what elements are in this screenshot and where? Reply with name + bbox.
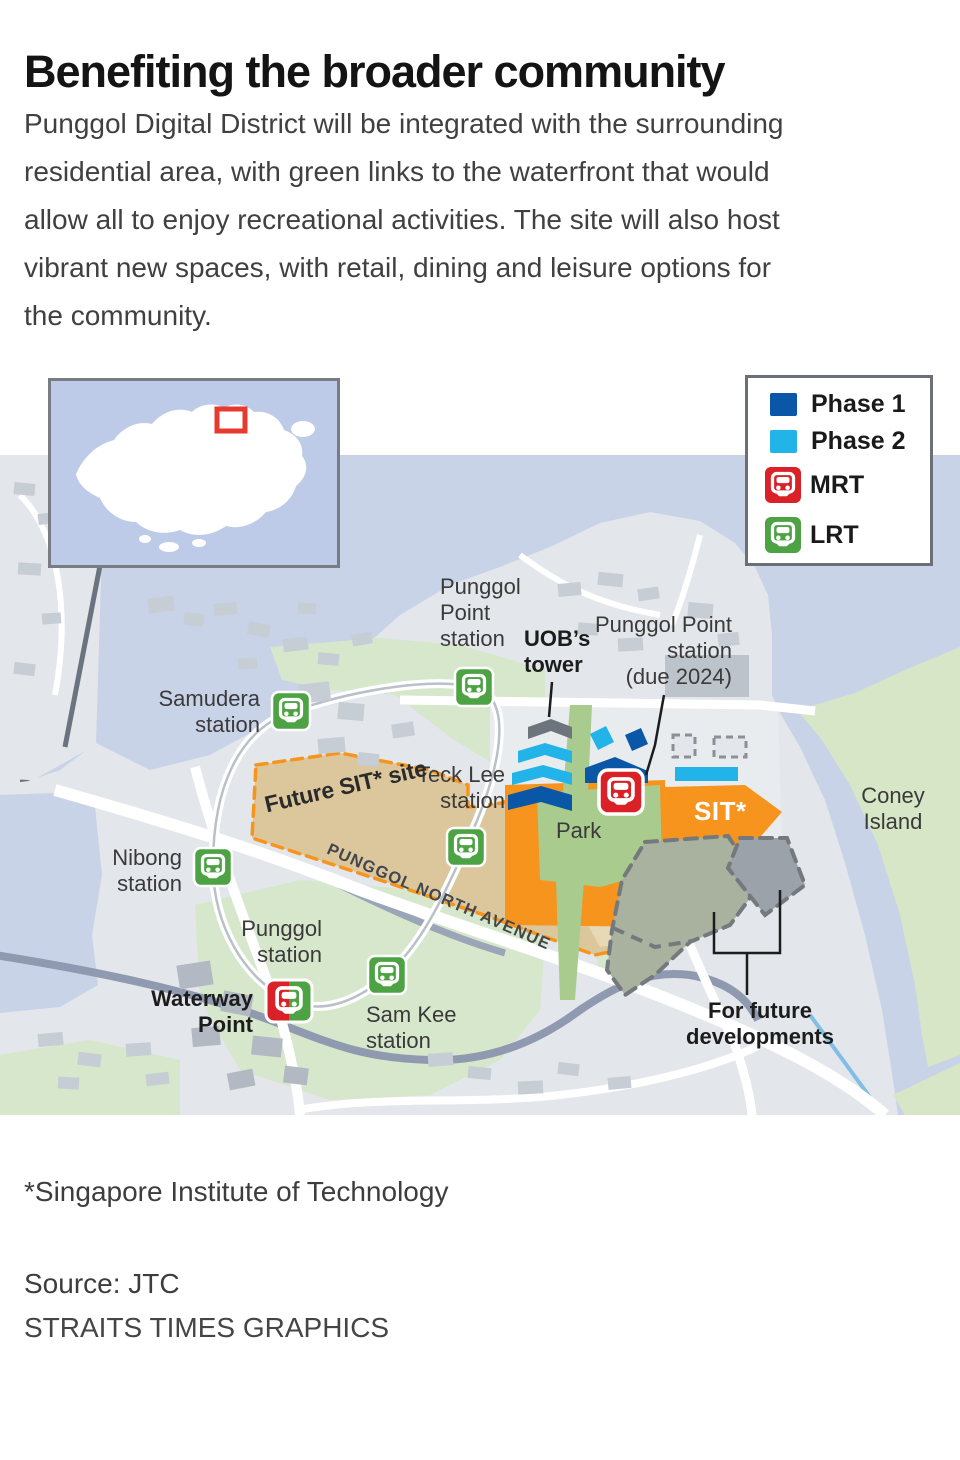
intro-line: vibrant new spaces, with retail, dining … (24, 244, 784, 292)
map-legend: Phase 1 Phase 2 MRT LRT (745, 375, 933, 566)
lrt-icon (764, 516, 802, 554)
teck-lee-station-label: Teck Lee station (417, 762, 505, 814)
samudera-lrt-icon (272, 692, 310, 730)
phase2-label: Phase 2 (811, 427, 906, 456)
intro-line: residential area, with green links to th… (24, 148, 784, 196)
mrt-icon (764, 466, 802, 504)
future-developments-label: For future developments (660, 998, 860, 1050)
punggol-point-mrt-icon (599, 770, 643, 814)
islet (291, 421, 315, 437)
infographic-page: Benefiting the broader community Punggol… (0, 0, 960, 1460)
water-inlet (0, 793, 102, 1013)
credit-line: STRAITS TIMES GRAPHICS (24, 1312, 389, 1344)
punggol-point-station-label: Punggol Point station (440, 574, 521, 652)
intro-line: allow all to enjoy recreational activiti… (24, 196, 784, 244)
sit-label: SIT* (694, 796, 747, 827)
future-building-outline (673, 735, 695, 757)
legend-row-lrt: LRT (764, 514, 930, 556)
punggol-mrt-lrt-interchange-icon (266, 980, 312, 1022)
islet (139, 535, 151, 543)
waterway-point-label: Waterway Point (151, 986, 253, 1038)
islet (192, 539, 206, 547)
intro-paragraph: Punggol Digital District will be integra… (24, 100, 784, 340)
park-label: Park (556, 818, 601, 844)
source-line: Source: JTC (24, 1268, 180, 1300)
phase1-swatch (770, 393, 797, 416)
footnote: *Singapore Institute of Technology (24, 1176, 448, 1208)
islet (159, 542, 179, 552)
phase2-building (675, 767, 738, 781)
lrt-label: LRT (810, 521, 859, 550)
coney-island-label: Coney Island (848, 783, 938, 835)
legend-row-phase1: Phase 1 (764, 390, 930, 419)
punggol-point-lrt-icon (455, 668, 493, 706)
singapore-inset-map (48, 378, 340, 568)
nibong-lrt-icon (194, 848, 232, 886)
future-building-outline (714, 737, 746, 757)
phase1-label: Phase 1 (811, 390, 906, 419)
uob-tower-label: UOB’s tower (524, 626, 590, 678)
nibong-station-label: Nibong station (112, 845, 182, 897)
sam-kee-lrt-icon (368, 956, 406, 994)
legend-row-phase2: Phase 2 (764, 427, 930, 456)
punggol-point-station-2024-label: Punggol Point station (due 2024) (595, 612, 732, 690)
page-title: Benefiting the broader community (24, 46, 725, 98)
samudera-station-label: Samudera station (158, 686, 260, 738)
singapore-silhouette (76, 405, 306, 535)
sam-kee-station-label: Sam Kee station (366, 1002, 457, 1054)
mrt-label: MRT (810, 471, 864, 500)
intro-line: the community. (24, 292, 784, 340)
punggol-station-label: Punggol station (241, 916, 322, 968)
teck-lee-lrt-icon (447, 828, 485, 866)
legend-row-mrt: MRT (764, 464, 930, 506)
intro-line: Punggol Digital District will be integra… (24, 100, 784, 148)
phase2-swatch (770, 430, 797, 453)
